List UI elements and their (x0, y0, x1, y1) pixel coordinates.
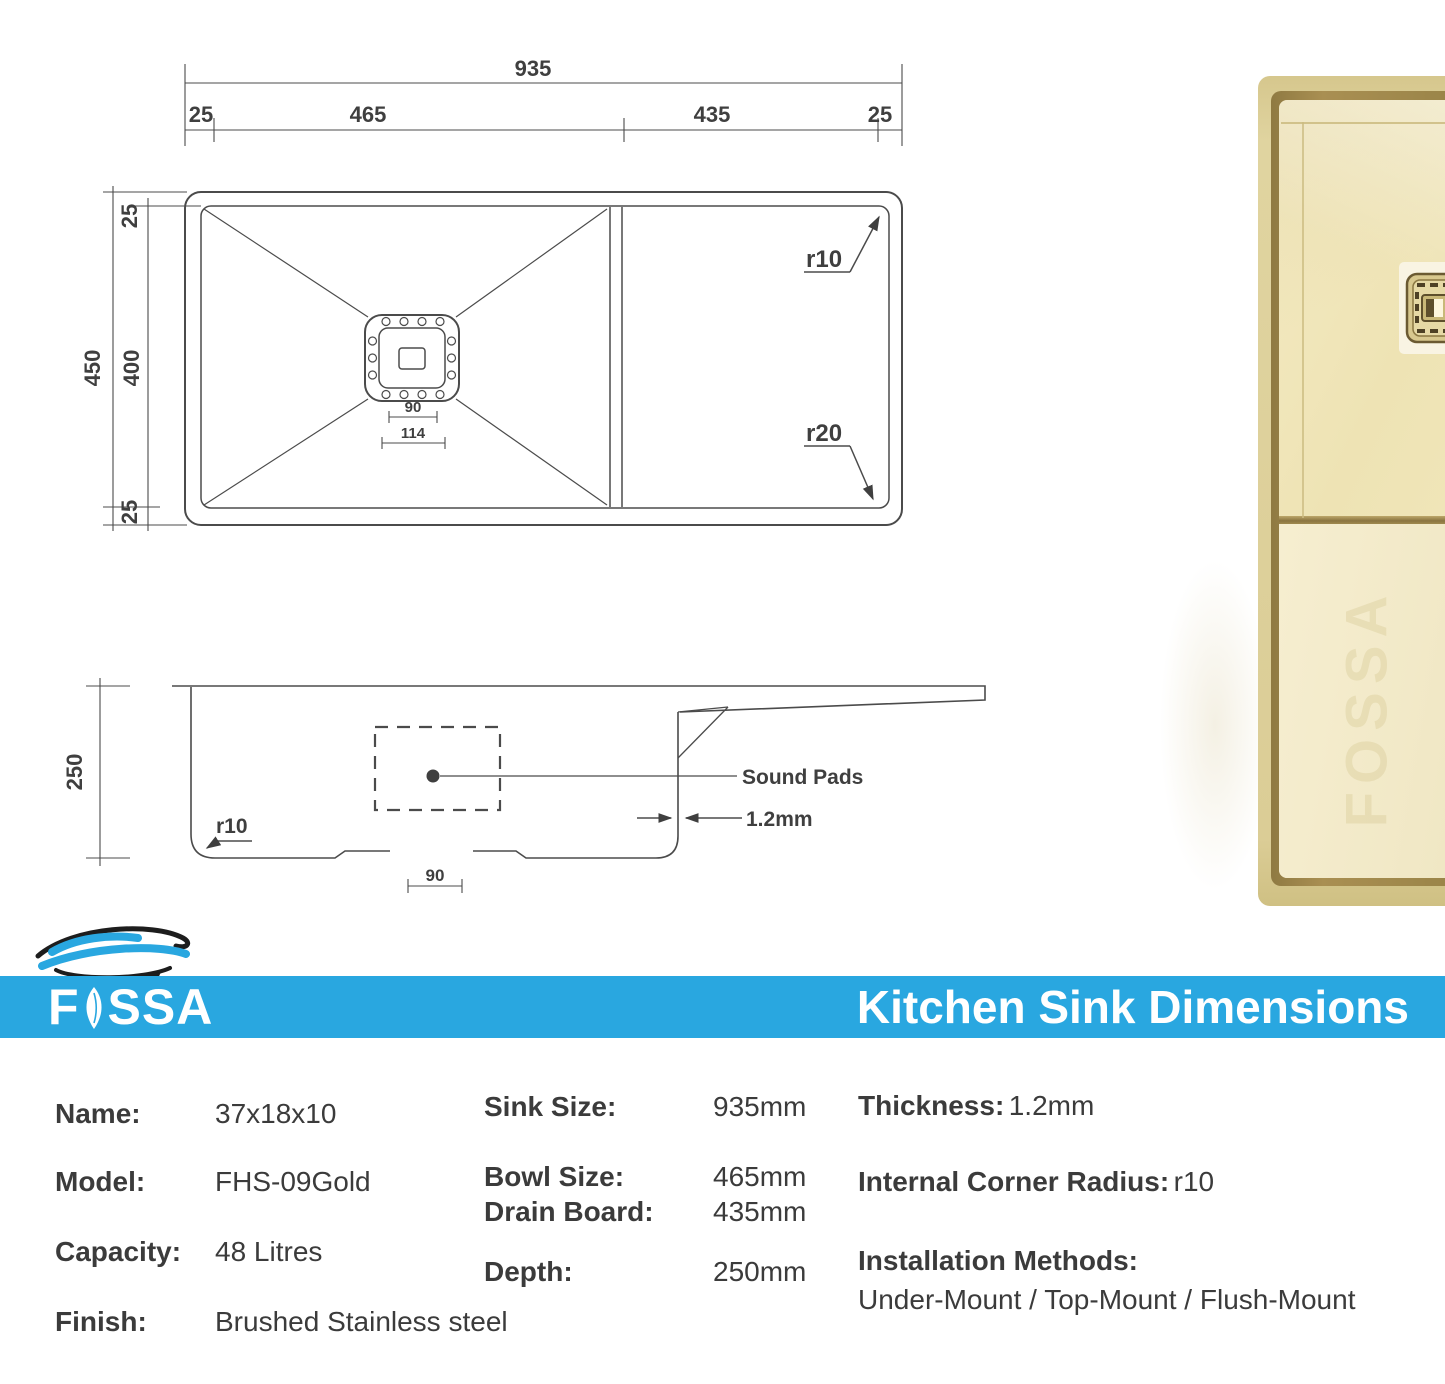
spec-label: Capacity: (55, 1236, 181, 1268)
fossa-bathtub-icon (28, 914, 203, 980)
dim-top-margin: 25 (117, 204, 142, 228)
spec-row-install-label: Installation Methods: (858, 1245, 1138, 1277)
top-view-outline (185, 192, 902, 525)
product-photo-gold-sink: FOSSA (1258, 76, 1445, 906)
dim-bowl-depth: 400 (119, 350, 144, 387)
depth-dimension-lines (86, 678, 130, 866)
callout-r10-top: r10 (806, 246, 842, 273)
dim-bowl-width: 465 (350, 102, 387, 127)
spec-value: FHS-09Gold (215, 1166, 371, 1198)
drain-holes (369, 318, 456, 399)
dim-left-margin: 25 (189, 102, 213, 127)
callout-r10-side: r10 (216, 815, 248, 838)
spec-row-corner-radius: Internal Corner Radius: r10 (858, 1166, 1214, 1198)
rim-line-vertical (1302, 122, 1304, 518)
spec-value: 1.2mm (1009, 1090, 1095, 1121)
dim-drain-outer: 114 (401, 425, 426, 442)
spec-label: Bowl Size: (484, 1161, 624, 1193)
spec-label: Drain Board: (484, 1196, 654, 1228)
sound-pad-dot (427, 770, 440, 783)
spec-value: 435mm (713, 1196, 806, 1228)
spec-label: Sink Size: (484, 1091, 616, 1123)
technical-drawing: 935 25 465 435 25 450 400 25 25 90 114 (0, 0, 1100, 960)
dim-drain-opening: 90 (426, 866, 445, 885)
spec-value: Under-Mount / Top-Mount / Flush-Mount (858, 1284, 1355, 1315)
banner-title: Kitchen Sink Dimensions (857, 976, 1409, 1038)
dim-drain-inner: 90 (405, 399, 422, 416)
drain-board-area: FOSSA (1279, 524, 1445, 878)
spec-label: Installation Methods: (858, 1245, 1138, 1276)
left-dimension-lines (103, 186, 201, 531)
sound-pads-label: Sound Pads (742, 766, 863, 789)
dim-drainboard-width: 435 (694, 102, 731, 127)
spec-row-install-value: Under-Mount / Top-Mount / Flush-Mount (858, 1284, 1355, 1316)
spec-value: 250mm (713, 1256, 806, 1288)
spec-value: 465mm (713, 1161, 806, 1193)
spec-label: Name: (55, 1098, 141, 1130)
dim-overall-depth: 450 (80, 350, 105, 387)
spec-label: Finish: (55, 1306, 147, 1338)
spec-label: Thickness: (858, 1090, 1004, 1121)
spec-value: 48 Litres (215, 1236, 322, 1268)
spec-value: 37x18x10 (215, 1098, 336, 1130)
dim-depth: 250 (62, 754, 87, 791)
dim-overall-width: 935 (515, 56, 552, 81)
spec-value: r10 (1174, 1166, 1214, 1197)
dim-bottom-margin: 25 (117, 500, 142, 524)
dim-right-margin: 25 (868, 102, 892, 127)
drain-top-view (365, 315, 459, 401)
leaf-icon (81, 986, 107, 1030)
thickness-callout: 1.2mm (746, 808, 813, 831)
photo-watermark: FOSSA (1334, 558, 1401, 858)
spec-value: Brushed Stainless steel (215, 1306, 508, 1338)
callout-r20: r20 (806, 420, 842, 447)
drain-cover (1405, 272, 1445, 344)
spec-sheet-page: 935 25 465 435 25 450 400 25 25 90 114 (0, 0, 1445, 1384)
brand-letters-ssa: SSA (108, 978, 214, 1036)
spec-label: Depth: (484, 1256, 573, 1288)
brand-logotype: F SSA (48, 977, 213, 1037)
rim-line-horizontal (1281, 122, 1445, 124)
spec-label: Internal Corner Radius: (858, 1166, 1169, 1197)
spec-label: Model: (55, 1166, 145, 1198)
r10-side-leader (207, 841, 252, 848)
faint-watermark-blob (1160, 560, 1270, 890)
spec-value: 935mm (713, 1091, 806, 1123)
brand-letter-f: F (48, 978, 80, 1036)
spec-row-thickness: Thickness: 1.2mm (858, 1090, 1094, 1122)
drain-cover-graphic (1405, 272, 1445, 344)
